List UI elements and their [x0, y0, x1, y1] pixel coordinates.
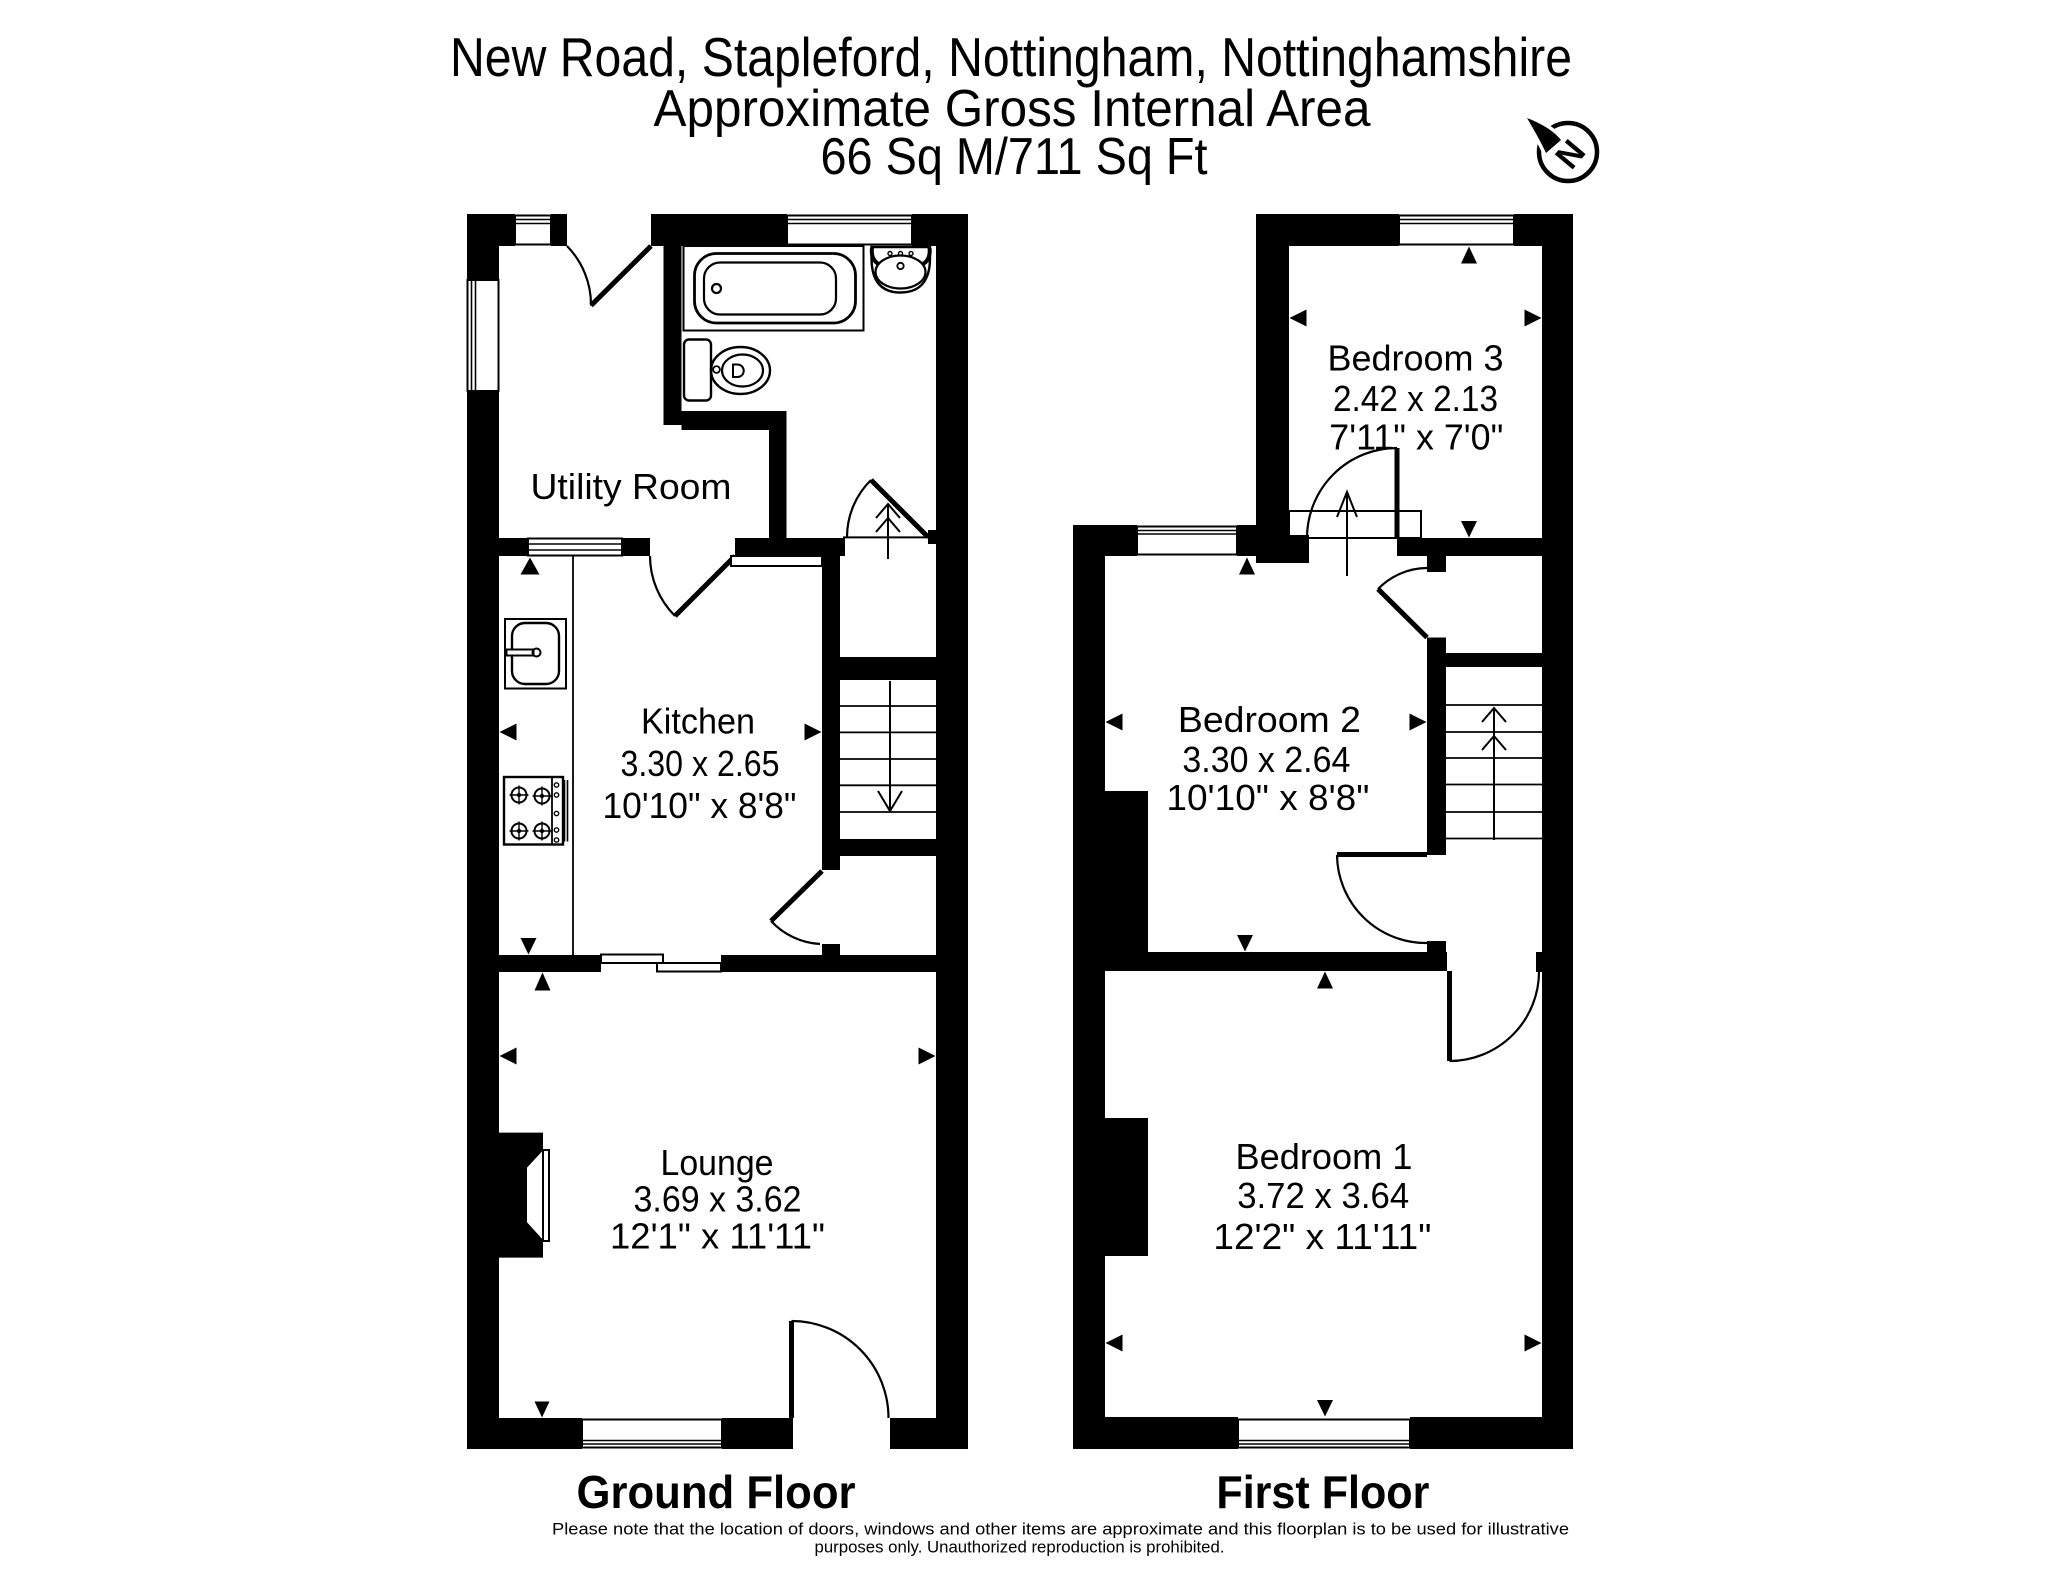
svg-text:Lounge: Lounge [661, 1142, 774, 1183]
svg-text:10'10" x 8'8": 10'10" x 8'8" [1166, 777, 1369, 818]
svg-text:Please note that the location: Please note that the location of doors, … [552, 1520, 1569, 1539]
svg-text:Bedroom 3: Bedroom 3 [1328, 338, 1504, 379]
svg-text:7'11" x 7'0": 7'11" x 7'0" [1329, 416, 1503, 457]
svg-text:2.42 x 2.13: 2.42 x 2.13 [1333, 378, 1498, 419]
svg-text:3.30 x 2.65: 3.30 x 2.65 [621, 743, 780, 784]
svg-text:Ground Floor: Ground Floor [577, 1466, 856, 1518]
svg-text:New Road, Stapleford, Nottingh: New Road, Stapleford, Nottingham, Nottin… [450, 26, 1572, 88]
svg-text:Bedroom 2: Bedroom 2 [1178, 699, 1361, 740]
svg-text:12'2" x 11'11": 12'2" x 11'11" [1213, 1216, 1431, 1257]
svg-text:3.69 x 3.62: 3.69 x 3.62 [634, 1179, 802, 1220]
svg-text:purposes only. Unauthorized re: purposes only. Unauthorized reproduction… [815, 1538, 1225, 1557]
svg-text:12'1" x 11'11": 12'1" x 11'11" [610, 1216, 825, 1257]
svg-text:3.30 x 2.64: 3.30 x 2.64 [1182, 739, 1350, 780]
svg-text:66 Sq M/711 Sq Ft: 66 Sq M/711 Sq Ft [821, 128, 1208, 186]
svg-text:3.72 x 3.64: 3.72 x 3.64 [1237, 1175, 1409, 1216]
svg-text:10'10" x 8'8": 10'10" x 8'8" [603, 785, 797, 826]
svg-text:First Floor: First Floor [1216, 1466, 1429, 1518]
svg-text:Kitchen: Kitchen [641, 701, 755, 742]
svg-text:Utility Room: Utility Room [531, 466, 732, 507]
svg-text:Bedroom 1: Bedroom 1 [1236, 1136, 1413, 1177]
